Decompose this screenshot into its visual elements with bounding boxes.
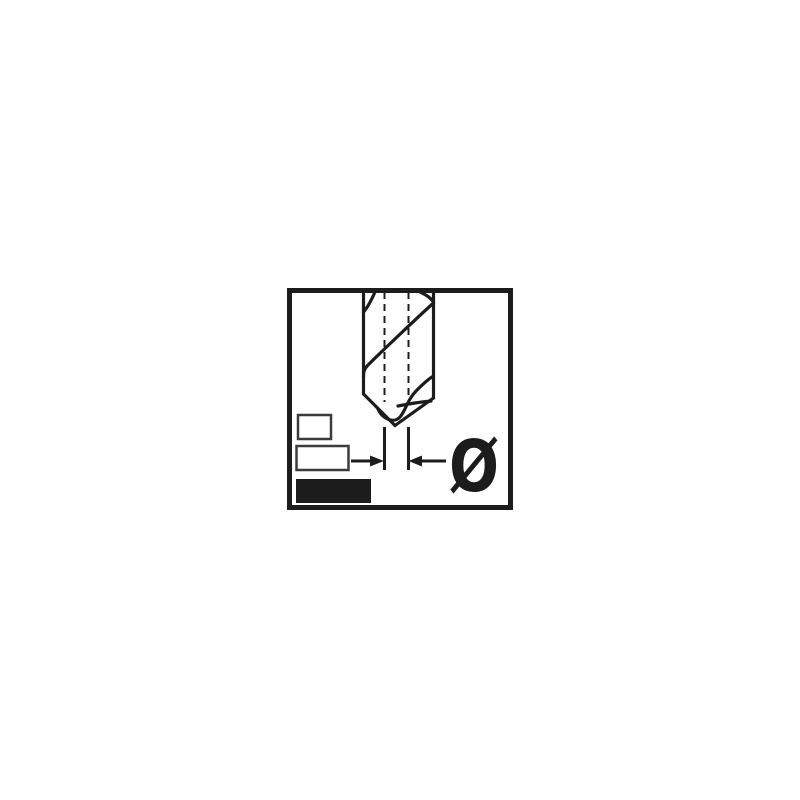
arrow-left-head-icon <box>370 456 384 467</box>
drill-flute-lower <box>378 376 434 420</box>
dimension-extension-lines <box>385 427 409 470</box>
legend-rect-filled <box>296 479 371 503</box>
size-legend <box>296 415 371 503</box>
legend-rect-medium <box>297 446 349 470</box>
legend-rect-small <box>298 415 331 439</box>
drill-flute-top-right <box>420 292 434 302</box>
diameter-symbol: Ø <box>449 425 499 508</box>
drill-flute-middle <box>364 303 434 377</box>
drill-flute-top-left <box>364 292 376 312</box>
drill-bit-icon <box>364 292 434 426</box>
arrow-right-head-icon <box>409 456 423 467</box>
drill-diameter-pictogram: Ø <box>0 0 800 800</box>
dimension-arrows-icon <box>351 456 446 467</box>
pictogram-canvas: Ø <box>0 0 800 800</box>
